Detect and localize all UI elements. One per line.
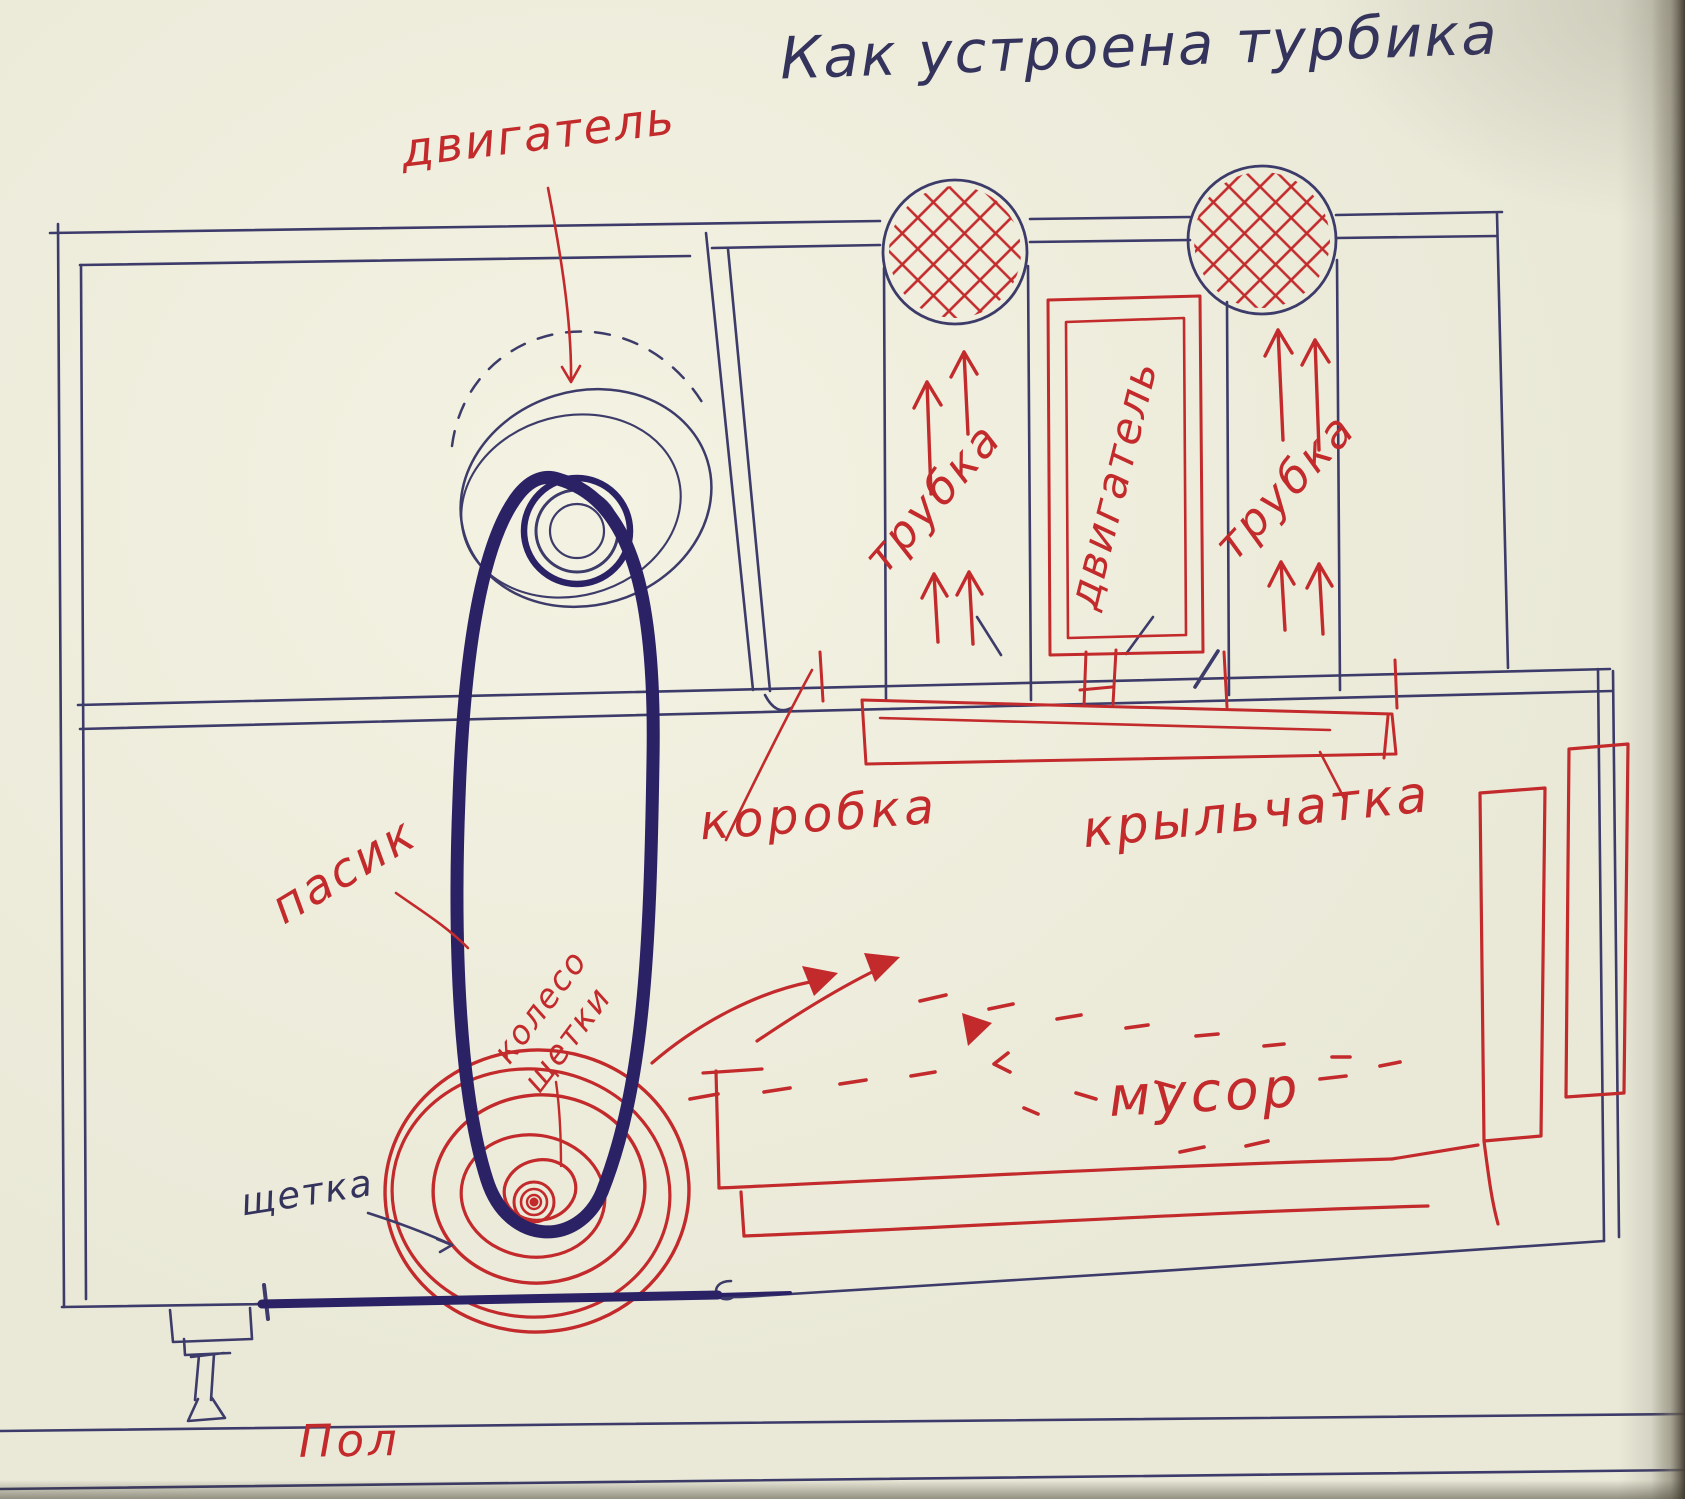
- sketch-photo: Как устроена турбика двигатель трубка дв…: [0, 0, 1685, 1499]
- floor-label: Пол: [298, 1413, 401, 1468]
- wheel-left: [883, 180, 1027, 324]
- debris-label: мусор: [1107, 1055, 1303, 1129]
